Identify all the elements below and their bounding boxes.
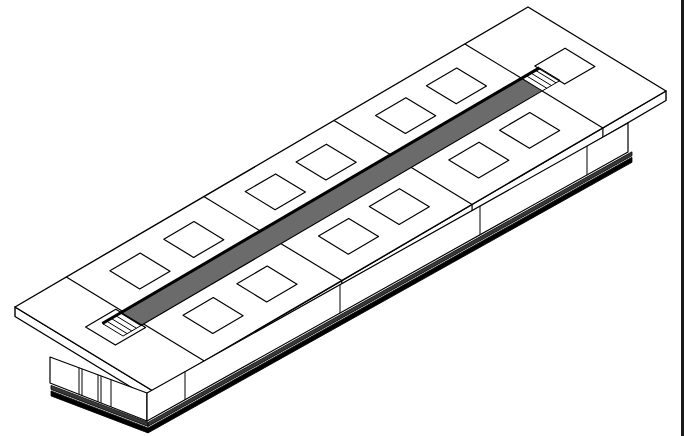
table-isometric-drawing — [0, 0, 685, 436]
drawing-canvas — [0, 0, 685, 436]
canvas-right-border — [681, 0, 684, 436]
